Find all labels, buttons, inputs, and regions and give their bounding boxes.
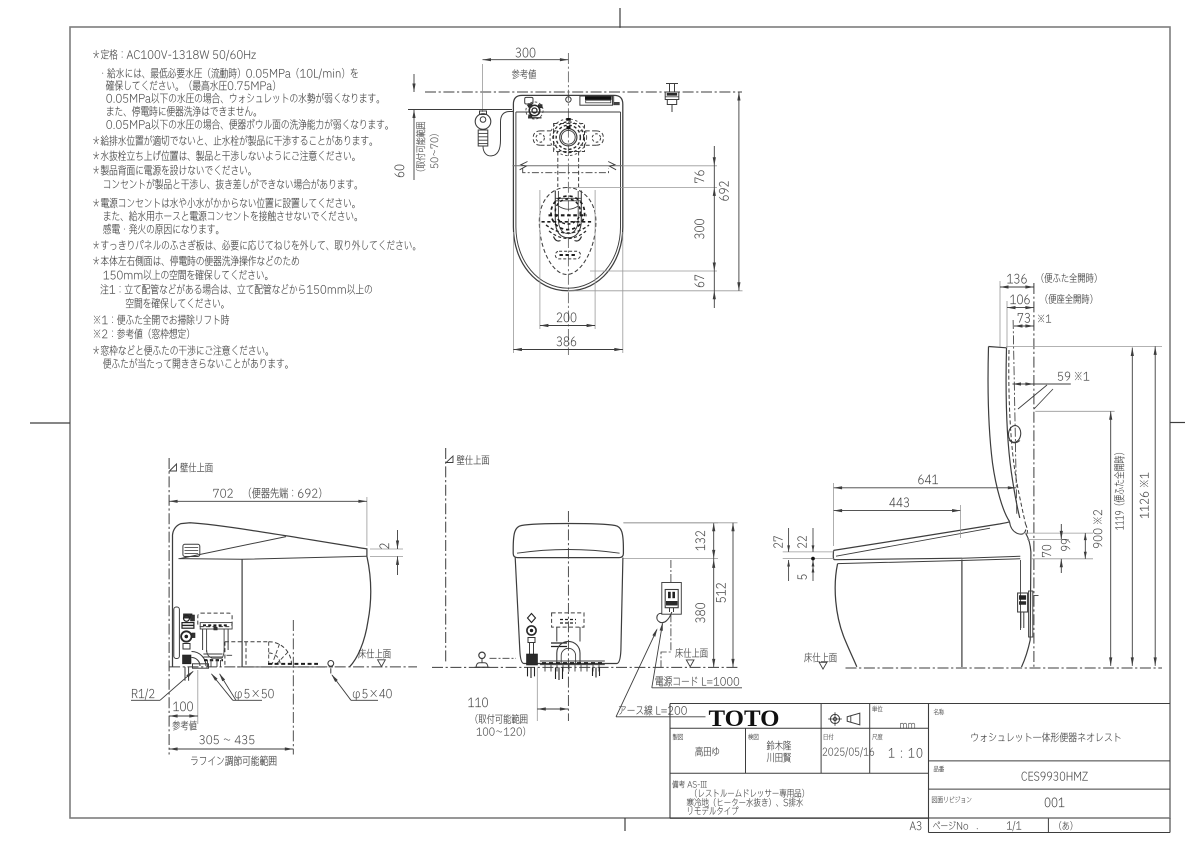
svg-text:TOTO: TOTO [709,706,780,732]
